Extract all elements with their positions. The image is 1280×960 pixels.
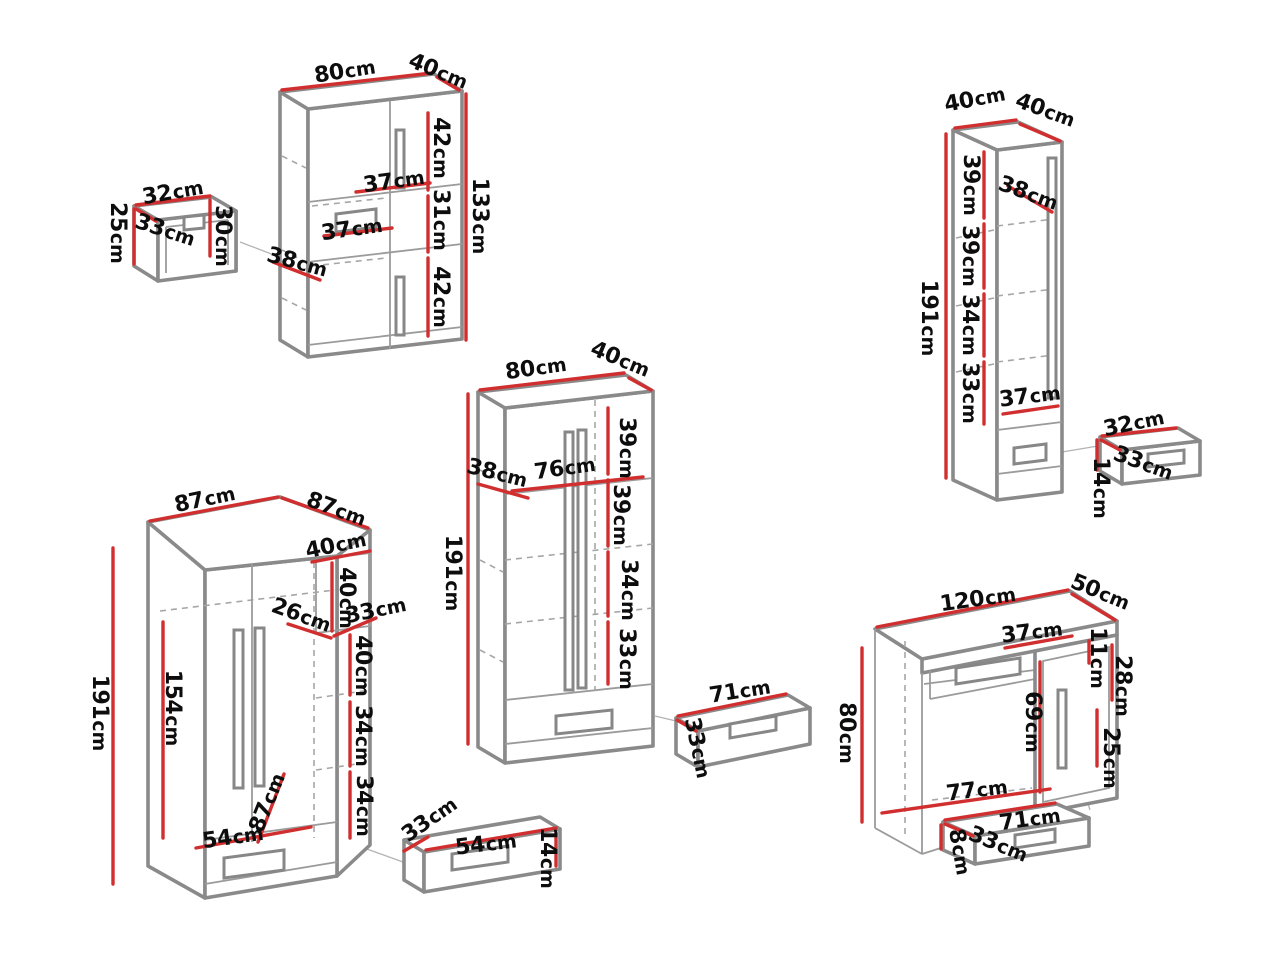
desk-drawer [941,803,1089,864]
wide-drawer [676,694,810,767]
small-drawer-box [1097,428,1200,484]
door-handle-slot [1048,158,1056,398]
door-handle-slot [396,130,404,188]
door-handle-slot [396,277,404,335]
low-drawer [404,817,560,892]
corner-wardrobe [113,497,376,898]
diagram-line-art [0,0,1280,960]
door-handle-slot [234,630,243,788]
door-handle-slot [565,432,573,690]
handle-slot [184,215,204,230]
drawer-handle-slot [556,710,612,734]
door-handle-slot [1058,690,1066,768]
door-handle-slot [578,430,586,688]
tall-cabinet-191 [946,120,1062,500]
two-door-cabinet-133 [273,73,466,357]
furniture-dimension-diagram: 32cm33cm25cm30cm80cm40cm42cm37cm31cm37cm… [0,0,1280,960]
small-open-box [134,196,236,281]
door-handle-slot [255,628,264,786]
drawer-handle-slot [1014,444,1046,464]
two-door-wardrobe-191 [468,373,653,763]
drawer-handle-slot [1148,450,1184,467]
drawer-handle-slot [336,209,376,232]
